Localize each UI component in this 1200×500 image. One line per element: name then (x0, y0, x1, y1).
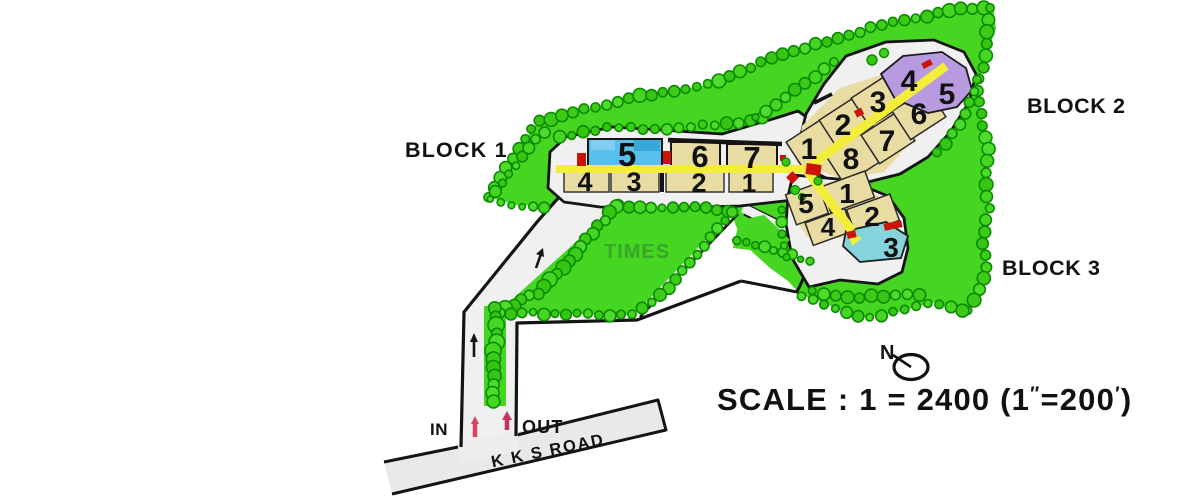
svg-text:3: 3 (626, 167, 641, 197)
svg-text:7: 7 (879, 125, 896, 158)
svg-text:2: 2 (864, 201, 880, 232)
svg-text:2: 2 (835, 109, 852, 142)
svg-text:1: 1 (801, 133, 818, 166)
svg-text:4: 4 (577, 167, 592, 197)
svg-text:6: 6 (911, 98, 928, 131)
svg-text:1: 1 (839, 178, 855, 209)
svg-text:TIMES: TIMES (604, 241, 670, 263)
svg-text:1: 1 (742, 168, 756, 198)
svg-text:OUT: OUT (522, 417, 564, 437)
svg-text:4: 4 (821, 212, 836, 242)
svg-text:2: 2 (691, 168, 706, 198)
svg-text:5: 5 (939, 78, 956, 111)
svg-text:BLOCK 3: BLOCK 3 (1002, 256, 1101, 280)
svg-text:SCALE : 1 = 2400 (1″=200′): SCALE : 1 = 2400 (1″=200′) (717, 382, 1132, 417)
svg-text:5: 5 (798, 188, 814, 219)
svg-text:BLOCK 1: BLOCK 1 (405, 138, 508, 162)
svg-text:BLOCK 2: BLOCK 2 (1027, 94, 1126, 118)
svg-text:4: 4 (901, 65, 918, 98)
svg-text:IN: IN (430, 420, 448, 439)
svg-text:8: 8 (843, 143, 860, 176)
svg-text:3: 3 (870, 86, 887, 119)
svg-text:N: N (880, 342, 894, 364)
svg-text:3: 3 (883, 232, 899, 263)
